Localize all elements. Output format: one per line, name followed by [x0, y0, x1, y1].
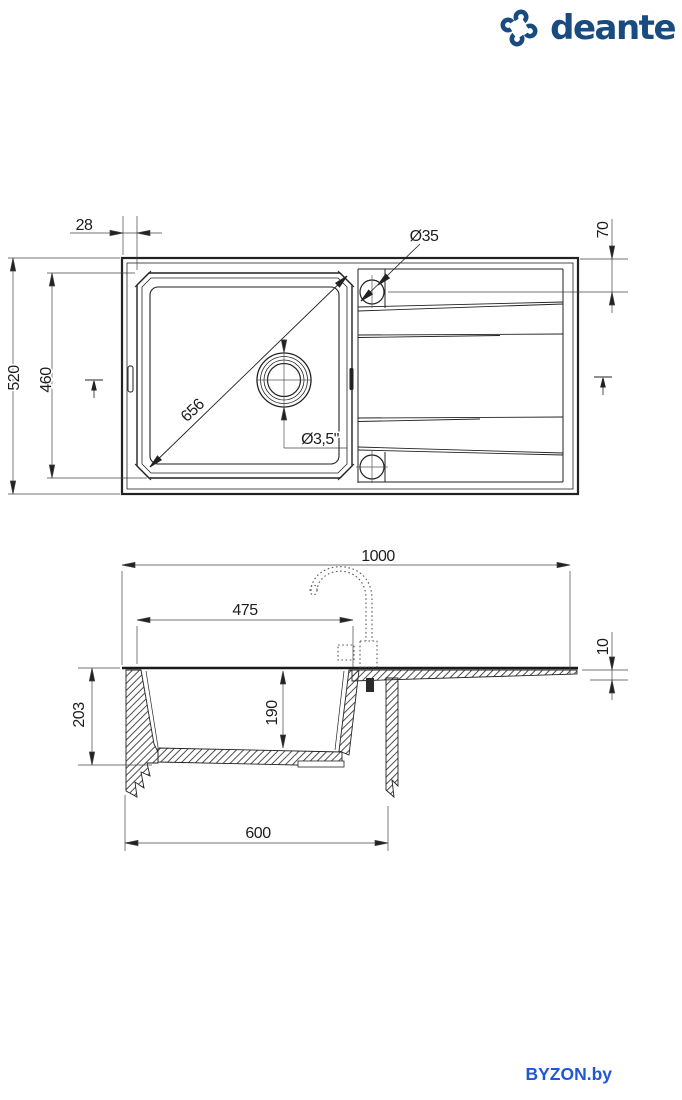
dim-label-overall-depth: 520	[6, 365, 23, 391]
dim-label-bowl-outer-height: 203	[71, 702, 88, 728]
clip-slot-divider	[350, 368, 354, 390]
faucet-shank	[366, 678, 374, 692]
dim-label-cabinet-width: 600	[245, 825, 271, 842]
spec-sheet-page: deante	[0, 0, 682, 1100]
section-cut-walls	[126, 670, 577, 797]
drainer-grooves	[358, 302, 563, 455]
watermark-text: BYZON.by	[525, 1064, 612, 1085]
faucet-outline	[310, 567, 377, 667]
tap-hole-bottom	[356, 451, 388, 483]
dim-label-bowl-length: 475	[232, 602, 258, 619]
dim-label-overall-length: 1000	[361, 548, 395, 565]
dim-label-drain-diameter: Ø3,5"	[301, 431, 339, 448]
clip-symbol-right	[594, 377, 612, 395]
tap-hole-top	[360, 275, 384, 308]
clip-symbol-left	[85, 380, 103, 398]
drainer-board	[358, 269, 563, 483]
dim-label-edge-offset: 28	[76, 217, 93, 234]
dim-label-bowl-diagonal: 656	[178, 395, 208, 425]
dim-label-bowl-inner-depth: 190	[264, 700, 281, 726]
dim-bowl-inner-depth	[280, 671, 285, 748]
clip-slot-left	[128, 366, 133, 392]
dim-overall-depth	[8, 258, 120, 494]
dim-cabinet-width	[125, 795, 388, 851]
left-wall-section	[126, 670, 158, 797]
top-view: 28 520 460 70 Ø35 656 Ø3,5"	[6, 216, 628, 494]
dim-label-bowl-depth: 460	[38, 367, 55, 393]
drain-recess	[298, 761, 344, 767]
leader-tap-hole-diameter	[359, 244, 420, 303]
dim-label-board-thickness: 10	[595, 638, 612, 655]
dim-label-tap-hole-diameter: Ø35	[410, 228, 439, 245]
technical-drawing: 28 520 460 70 Ø35 656 Ø3,5"	[0, 0, 682, 1100]
dim-bowl-length	[137, 617, 353, 667]
side-view: 1000 475 10 203 190 600	[71, 548, 628, 851]
right-leg-section	[386, 678, 398, 797]
dim-label-tap-hole-offset: 70	[595, 221, 612, 238]
right-bowl-wall-section	[339, 670, 359, 755]
